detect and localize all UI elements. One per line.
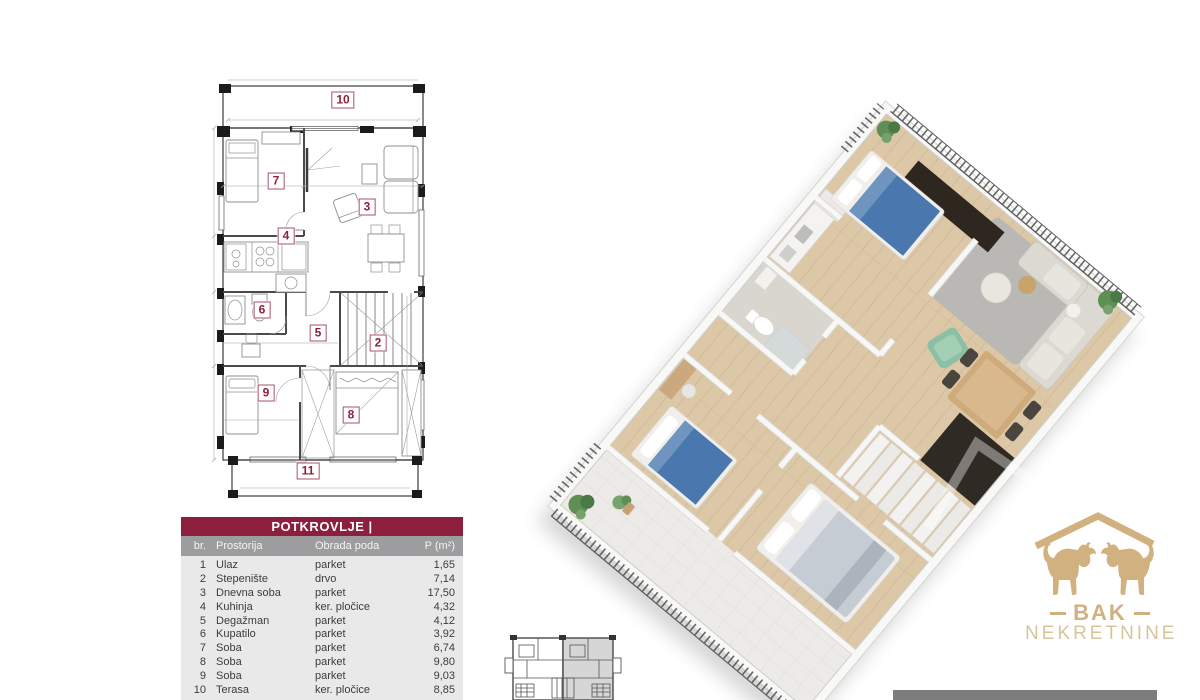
table-row: 1 Ulaz parket 1,65: [189, 559, 455, 573]
cell-room: Soba: [216, 642, 315, 656]
cell-area: 3,92: [407, 628, 455, 642]
cell-room: Stepenište: [216, 573, 315, 587]
bathroom-fixtures-2d: [225, 294, 267, 324]
agency-logo: BAK NEKRETNINE: [1025, 505, 1195, 655]
cell-area: 4,32: [407, 601, 455, 615]
cell-room: Dnevna soba: [216, 587, 315, 601]
table-row: 9 Soba parket 9,03: [189, 670, 455, 684]
cell-br: 3: [189, 587, 206, 601]
table-row: 5 Degažman parket 4,12: [189, 615, 455, 629]
staircase-2d: [341, 293, 422, 365]
cell-br: 6: [189, 628, 206, 642]
kitchen-counter: [224, 242, 308, 292]
cell-br: 8: [189, 656, 206, 670]
cell-area: 9,03: [407, 670, 455, 684]
logo-roof-icon: [1036, 516, 1153, 546]
cell-floor: parket: [315, 642, 407, 656]
terrace-10-outline: [219, 80, 425, 128]
cell-br: 9: [189, 670, 206, 684]
col-br: br.: [189, 536, 206, 556]
cell-br: 10: [189, 684, 206, 698]
cell-floor: ker. pločice: [315, 601, 407, 615]
bed-room8: [302, 370, 421, 458]
cell-floor: parket: [315, 656, 407, 670]
cell-area: 7,14: [407, 573, 455, 587]
cell-floor: parket: [315, 587, 407, 601]
cell-floor: parket: [315, 615, 407, 629]
cell-area: 8,85: [407, 684, 455, 698]
col-obrada: Obrada poda: [315, 536, 407, 556]
table-row: 8 Soba parket 9,80: [189, 656, 455, 670]
cell-floor: parket: [315, 670, 407, 684]
cell-br: 5: [189, 615, 206, 629]
col-povrsina: P (m²): [407, 536, 455, 556]
table-row: 2 Stepenište drvo 7,14: [189, 573, 455, 587]
cell-area: 6,74: [407, 642, 455, 656]
cell-room: Soba: [216, 656, 315, 670]
table-body: 1 Ulaz parket 1,65 2 Stepenište drvo 7,1…: [181, 556, 463, 700]
tv-symbol: [307, 148, 340, 192]
logo-subtitle: NEKRETNINE: [1025, 623, 1175, 645]
flyer-page: 107346529811 POTKROVLJE | br. Prostorija…: [0, 0, 1200, 700]
living-furniture-2d: [333, 146, 418, 272]
table-title: POTKROVLJE |: [181, 517, 463, 536]
cell-area: 1,65: [407, 559, 455, 573]
bed-room7: [226, 132, 300, 202]
cell-br: 7: [189, 642, 206, 656]
footer-bar: [893, 690, 1157, 700]
bed-room9: [226, 334, 260, 434]
cell-area: 17,50: [407, 587, 455, 601]
cell-area: 4,12: [407, 615, 455, 629]
cell-room: Degažman: [216, 615, 315, 629]
cell-room: Kuhinja: [216, 601, 315, 615]
cell-floor: ker. pločice: [315, 684, 407, 698]
logo-dash-right: [1134, 612, 1150, 615]
table-row: 10 Terasa ker. pločice 8,85: [189, 684, 455, 698]
mini-site-plan: [500, 628, 730, 700]
mini-plan-units: [505, 635, 621, 700]
cell-floor: parket: [315, 628, 407, 642]
cell-br: 1: [189, 559, 206, 573]
cell-floor: drvo: [315, 573, 407, 587]
table-row: 7 Soba parket 6,74: [189, 642, 455, 656]
cell-floor: parket: [315, 559, 407, 573]
table-row: 4 Kuhinja ker. pločice 4,32: [189, 601, 455, 615]
logo-bulls-icon: [1043, 542, 1153, 595]
floor-plan-2d: [210, 76, 438, 512]
table-row: 3 Dnevna soba parket 17,50: [189, 587, 455, 601]
cell-room: Kupatilo: [216, 628, 315, 642]
table-row: 6 Kupatilo parket 3,92: [189, 628, 455, 642]
col-prostorija: Prostorija: [216, 536, 315, 556]
cell-room: Soba: [216, 670, 315, 684]
area-table: POTKROVLJE | br. Prostorija Obrada poda …: [181, 517, 463, 700]
cell-room: Terasa: [216, 684, 315, 698]
logo-dash-left: [1050, 612, 1066, 615]
cell-room: Ulaz: [216, 559, 315, 573]
table-header-row: br. Prostorija Obrada poda P (m²): [181, 536, 463, 556]
cell-br: 4: [189, 601, 206, 615]
cell-area: 9,80: [407, 656, 455, 670]
cell-br: 2: [189, 573, 206, 587]
